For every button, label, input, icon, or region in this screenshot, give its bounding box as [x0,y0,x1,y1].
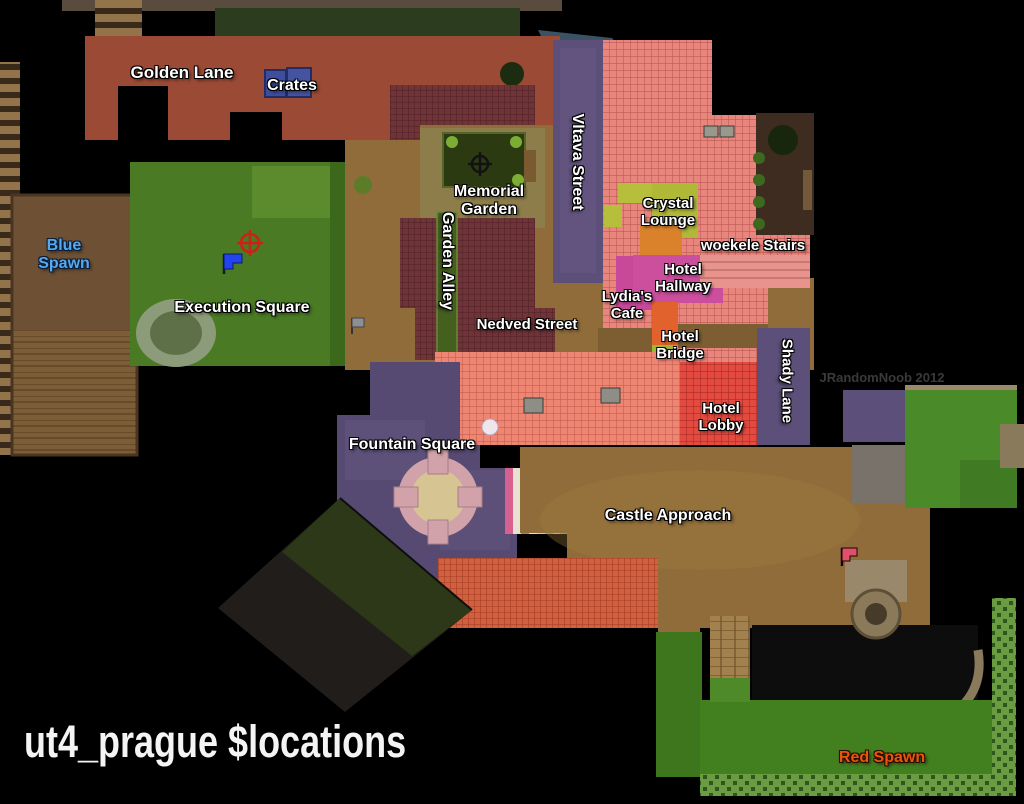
label-shady-lane: Shady Lane [778,339,795,423]
south-roof [438,558,658,628]
label-golden-lane: Golden Lane [131,63,234,82]
hedge-right [992,598,1016,796]
label-crates: Crates [267,77,317,95]
stone-platform-center [150,311,202,355]
label-memorial-garden: Memorial Garden [442,183,536,219]
tower-grass [710,678,750,702]
prague-map-graphic [0,0,1024,804]
alley-roofs [400,218,555,360]
label-crystal-lounge: Crystal Lounge [630,196,706,230]
label-woekele-stairs: woekele Stairs [701,238,805,255]
hedge-bottom [700,774,994,796]
label-execution-square: Execution Square [174,299,309,317]
stone-outcrop [1000,424,1024,468]
brick-tower [710,616,750,680]
label-hotel-lobby: Hotel Lobby [686,401,756,435]
stone-structure [852,445,907,503]
blue-spawn-planks [12,330,137,455]
white-ball-icon [482,419,498,435]
tree [500,62,524,86]
purple-patch [843,390,905,442]
watermark: JRandomNoob 2012 [820,370,945,385]
label-lydias-cafe: Lydia's Cafe [591,289,663,323]
red-spawn-lawn-strip [656,632,702,777]
label-nedved-street: Nedved Street [477,317,578,334]
round-tower-center [865,603,887,625]
label-blue-spawn: Blue Spawn [32,237,96,273]
label-hotel-bridge: Hotel Bridge [645,329,715,363]
label-vltava-street: Vltava Street [568,114,586,211]
mid-roof [435,352,680,445]
map-title: ut4_prague $locations [24,716,406,768]
map-screenshot: Golden Lane Crates Blue Spawn Memorial G… [0,0,1024,804]
label-red-spawn: Red Spawn [839,749,925,767]
label-garden-alley: Garden Alley [438,212,456,310]
roof-gap [118,86,168,142]
roof-gap [230,112,282,162]
label-fountain-square: Fountain Square [349,436,475,454]
bench [524,150,536,182]
label-castle-approach: Castle Approach [605,507,732,525]
